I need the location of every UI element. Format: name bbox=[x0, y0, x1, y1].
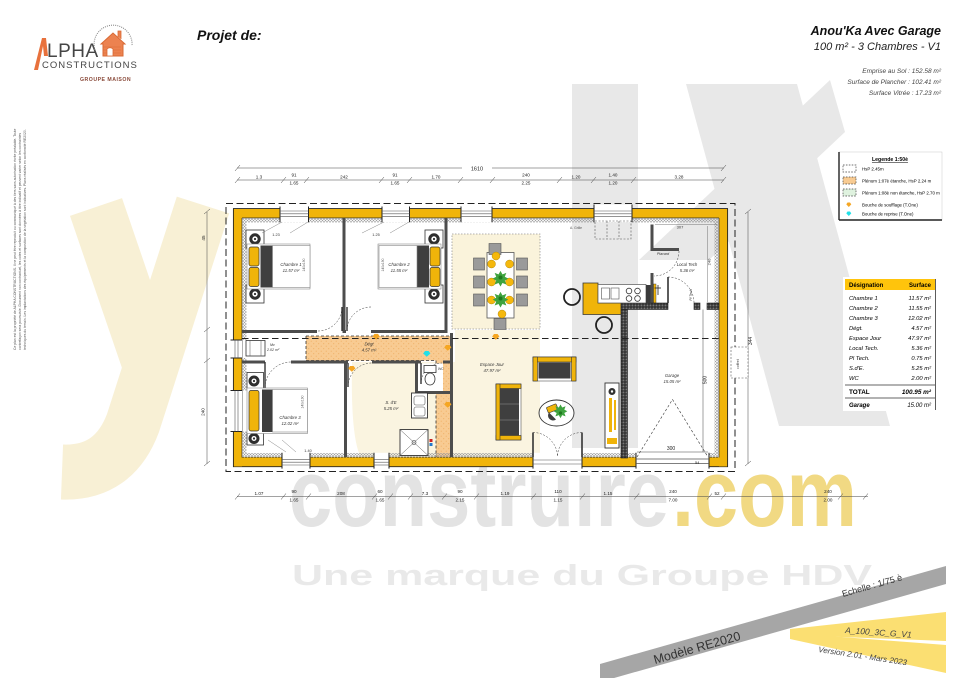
svg-text:Chambre 1: Chambre 1 bbox=[849, 296, 878, 302]
svg-text:1.65: 1.65 bbox=[290, 498, 299, 503]
svg-text:1.15: 1.15 bbox=[604, 491, 613, 496]
svg-text:1.23: 1.23 bbox=[272, 233, 279, 237]
svg-text:500: 500 bbox=[703, 376, 709, 385]
svg-text:12.02 m²: 12.02 m² bbox=[282, 421, 300, 426]
svg-text:Bouche de soufflage (T.One): Bouche de soufflage (T.One) bbox=[862, 203, 918, 208]
svg-text:Pl Tech.: Pl Tech. bbox=[849, 356, 870, 362]
svg-text:Chambre 3: Chambre 3 bbox=[849, 316, 878, 322]
svg-text:Espace Jour: Espace Jour bbox=[849, 336, 882, 342]
svg-text:140x190: 140x190 bbox=[381, 258, 385, 271]
svg-text:Chambre 3: Chambre 3 bbox=[279, 415, 301, 420]
svg-text:5.36 m²: 5.36 m² bbox=[680, 268, 695, 273]
svg-text:Surface de Plancher : 102.41 m: Surface de Plancher : 102.41 m² bbox=[847, 79, 941, 86]
svg-text:240: 240 bbox=[707, 258, 712, 265]
svg-text:Désignation: Désignation bbox=[849, 283, 884, 289]
svg-text:240: 240 bbox=[669, 489, 677, 494]
svg-text:45: 45 bbox=[201, 235, 206, 241]
svg-text:CONSTRUCTIONS: CONSTRUCTIONS bbox=[42, 60, 138, 71]
svg-text:47.97 m²: 47.97 m² bbox=[484, 368, 502, 373]
svg-text:S. d'E: S. d'E bbox=[385, 400, 396, 405]
svg-text:Une marque du Groupe HDV: Une marque du Groupe HDV bbox=[292, 560, 873, 592]
svg-text:Chambre 2: Chambre 2 bbox=[849, 306, 878, 312]
svg-text:1.65: 1.65 bbox=[391, 181, 400, 186]
svg-text:2.02 m²: 2.02 m² bbox=[266, 348, 280, 352]
svg-text:coffret: coffret bbox=[736, 359, 740, 369]
svg-text:3.28: 3.28 bbox=[675, 175, 684, 180]
svg-text:Espace Jour: Espace Jour bbox=[480, 362, 504, 367]
svg-text:1.40: 1.40 bbox=[304, 449, 311, 453]
svg-text:2.00: 2.00 bbox=[824, 498, 833, 503]
svg-text:2.25: 2.25 bbox=[522, 181, 531, 186]
svg-text:100 m² - 3 Chambres - V1: 100 m² - 3 Chambres - V1 bbox=[814, 41, 941, 53]
svg-text:Local Tech.: Local Tech. bbox=[849, 346, 878, 352]
svg-text:1.20: 1.20 bbox=[572, 175, 581, 180]
svg-text:54: 54 bbox=[695, 460, 700, 465]
svg-text:91: 91 bbox=[291, 173, 297, 178]
svg-text:TOTAL: TOTAL bbox=[849, 389, 870, 396]
svg-text:11.57 m²: 11.57 m² bbox=[909, 296, 933, 302]
svg-text:5.36 m²: 5.36 m² bbox=[911, 346, 932, 352]
svg-text:contrefaçon sera poursuivie. D: contrefaçon sera poursuivie. Document no… bbox=[18, 133, 22, 350]
svg-text:240: 240 bbox=[824, 489, 832, 494]
svg-text:1610: 1610 bbox=[471, 167, 483, 173]
svg-text:Garage: Garage bbox=[849, 403, 870, 409]
svg-text:344: 344 bbox=[748, 337, 754, 346]
svg-text:7.00: 7.00 bbox=[669, 498, 678, 503]
svg-text:Ce plan est la propriété de AL: Ce plan est la propriété de ALPHA CONSTR… bbox=[13, 129, 17, 350]
svg-text:Mv: Mv bbox=[270, 343, 275, 347]
svg-text:Pl Tech: Pl Tech bbox=[689, 289, 693, 300]
svg-text:100.95 m²: 100.95 m² bbox=[902, 389, 932, 396]
svg-text:4.57 m²: 4.57 m² bbox=[362, 348, 377, 353]
svg-text:11.57 m²: 11.57 m² bbox=[283, 268, 300, 273]
svg-text:1.15: 1.15 bbox=[554, 498, 563, 503]
svg-text:0.75 m²: 0.75 m² bbox=[911, 356, 932, 362]
svg-text:Chambre 2: Chambre 2 bbox=[388, 262, 410, 267]
svg-text:11.55 m²: 11.55 m² bbox=[909, 306, 933, 312]
svg-text:140x190: 140x190 bbox=[301, 395, 305, 408]
svg-text:1.40: 1.40 bbox=[609, 173, 618, 178]
svg-text:Dégt.: Dégt. bbox=[849, 326, 863, 332]
svg-text:Garage: Garage bbox=[665, 373, 680, 378]
svg-text:Dégt: Dégt bbox=[364, 342, 374, 347]
svg-text:1.70: 1.70 bbox=[432, 175, 441, 180]
svg-text:1.20: 1.20 bbox=[609, 181, 618, 186]
svg-text:242: 242 bbox=[340, 175, 348, 180]
svg-text:1.19: 1.19 bbox=[501, 491, 510, 496]
svg-text:Placard: Placard bbox=[657, 252, 670, 256]
svg-text:90: 90 bbox=[457, 489, 463, 494]
svg-text:Surface: Surface bbox=[909, 283, 932, 289]
svg-text:Emprise au Sol : 152.58 m²: Emprise au Sol : 152.58 m² bbox=[862, 68, 942, 75]
svg-text:90: 90 bbox=[291, 489, 297, 494]
svg-text:Projet de:: Projet de: bbox=[197, 27, 262, 43]
svg-text:1.3: 1.3 bbox=[256, 175, 263, 180]
svg-text:Chambre 1: Chambre 1 bbox=[280, 262, 302, 267]
svg-text:91: 91 bbox=[392, 173, 398, 178]
svg-text:140x190: 140x190 bbox=[302, 258, 306, 271]
svg-text:techniques du terrain. Les imp: techniques du terrain. Les implantations… bbox=[23, 129, 27, 350]
svg-text:GROUPE MAISON: GROUPE MAISON bbox=[80, 77, 131, 83]
svg-text:240: 240 bbox=[522, 173, 530, 178]
svg-text:110: 110 bbox=[554, 489, 562, 494]
svg-text:Plénum 1:08è non étanche, HsP: Plénum 1:08è non étanche, HsP 2.70 m bbox=[862, 191, 940, 196]
svg-text:S.d'E.: S.d'E. bbox=[849, 366, 864, 372]
svg-text:1.65: 1.65 bbox=[376, 498, 385, 503]
svg-text:WC: WC bbox=[438, 367, 444, 371]
svg-text:4.57 m²: 4.57 m² bbox=[911, 326, 932, 332]
svg-text:2.15: 2.15 bbox=[456, 498, 465, 503]
svg-text:Bouche de reprise (T.One): Bouche de reprise (T.One) bbox=[862, 212, 914, 217]
svg-text:WC: WC bbox=[849, 376, 859, 382]
svg-text:208: 208 bbox=[337, 491, 345, 496]
svg-text:1.65: 1.65 bbox=[290, 181, 299, 186]
svg-text:60: 60 bbox=[377, 489, 383, 494]
svg-text:15.00 m²: 15.00 m² bbox=[907, 403, 932, 409]
svg-text:307: 307 bbox=[677, 225, 684, 230]
svg-text:5.25 m²: 5.25 m² bbox=[911, 366, 932, 372]
svg-text:5.25 m²: 5.25 m² bbox=[384, 406, 399, 411]
svg-text:11.55 m²: 11.55 m² bbox=[391, 268, 408, 273]
svg-text:15.05 m²: 15.05 m² bbox=[664, 379, 682, 384]
svg-text:Plénum 1:07è étanche, HsP 2.24: Plénum 1:07è étanche, HsP 2.24 m bbox=[862, 179, 932, 184]
svg-text:HsP 2.45m: HsP 2.45m bbox=[862, 167, 884, 172]
svg-text:52: 52 bbox=[714, 491, 720, 496]
svg-text:Local Tech: Local Tech bbox=[677, 262, 698, 267]
svg-text:7.3: 7.3 bbox=[422, 491, 429, 496]
svg-text:12.02 m²: 12.02 m² bbox=[908, 316, 932, 322]
svg-text:Legende 1:50è: Legende 1:50è bbox=[872, 157, 908, 163]
svg-text:A. Grille: A. Grille bbox=[570, 226, 582, 230]
svg-text:240: 240 bbox=[201, 408, 206, 416]
svg-text:2.00 m²: 2.00 m² bbox=[910, 376, 932, 382]
svg-text:300: 300 bbox=[667, 446, 676, 452]
svg-text:1.25: 1.25 bbox=[372, 233, 379, 237]
svg-text:47.97 m²: 47.97 m² bbox=[908, 336, 932, 342]
svg-text:LPHA: LPHA bbox=[47, 41, 99, 62]
svg-text:1.07: 1.07 bbox=[255, 491, 264, 496]
svg-text:Anou'Ka Avec Garage: Anou'Ka Avec Garage bbox=[810, 24, 941, 38]
svg-text:Surface Vitrée : 17.23 m²: Surface Vitrée : 17.23 m² bbox=[869, 90, 942, 97]
